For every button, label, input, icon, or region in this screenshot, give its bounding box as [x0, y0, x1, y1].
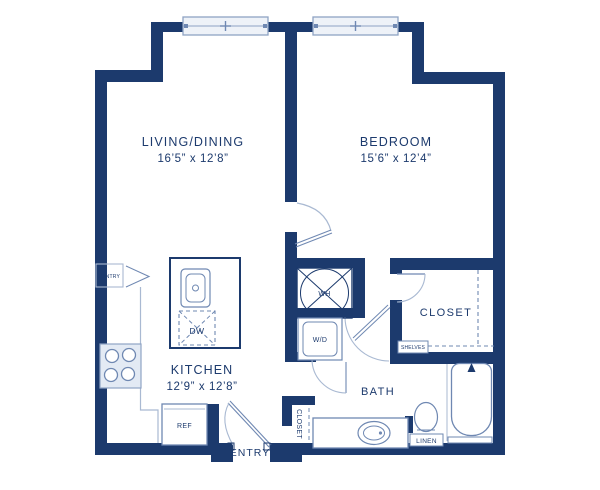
tub-ledge: [448, 437, 492, 443]
floor-plan-svg: LIVING/DINING 16’5” x 12’8” BEDROOM 15’6…: [0, 0, 600, 490]
toilet: [415, 403, 438, 432]
living-dining-label: LIVING/DINING: [142, 135, 245, 149]
bedroom-window: [313, 17, 398, 35]
bathtub: [447, 363, 492, 443]
burner: [123, 349, 136, 362]
kitchen-island: [170, 258, 240, 348]
water-heater-label: WH: [318, 291, 330, 298]
closet-door: [397, 274, 425, 302]
wall-closet-bottom: [390, 352, 505, 364]
burner: [122, 368, 135, 381]
wall-kitchen-entry-post: [207, 404, 219, 444]
entry-label: ENTRY: [230, 447, 270, 459]
burner: [105, 369, 118, 382]
pantry-door: [126, 266, 149, 287]
burner: [106, 350, 119, 363]
bedroom-double-door: [295, 203, 332, 247]
bath-door: [312, 359, 346, 393]
wall-utility-left: [285, 232, 297, 362]
washer-dryer-label: W/D: [313, 337, 328, 344]
dishwasher-label: DW: [190, 326, 205, 336]
bedroom-dimensions: 15’6” x 12’4”: [360, 153, 431, 165]
kitchen-label: KITCHEN: [171, 363, 234, 377]
counter-edge-lower: [141, 388, 159, 443]
kitchen-dimensions: 12’9” x 12’8”: [166, 381, 237, 393]
entry-door: [225, 401, 271, 450]
floor-plan: LIVING/DINING 16’5” x 12’8” BEDROOM 15’6…: [0, 0, 600, 490]
island-sink: [181, 269, 210, 307]
wall-closet-left-stub: [390, 258, 402, 274]
wall-top-left-step: [151, 22, 163, 82]
wall-left: [95, 70, 107, 455]
living-window: [183, 17, 268, 35]
entry-closet-label: CLOSET: [295, 409, 302, 439]
bedroom-label: BEDROOM: [360, 135, 432, 149]
closet-label: CLOSET: [420, 307, 472, 319]
vanity: [313, 418, 408, 448]
wall-living-bedroom: [285, 22, 297, 202]
wall-closet-top: [390, 258, 505, 270]
wall-top-right-step-horizontal: [412, 72, 495, 84]
linen-label: LINEN: [416, 438, 437, 445]
stove: [100, 344, 141, 388]
wall-entry-closet-left: [282, 396, 292, 426]
pantry-label: PANTRY: [99, 274, 120, 280]
bath-label: BATH: [361, 386, 395, 398]
living-dining-dimensions: 16’5” x 12’8”: [157, 153, 228, 165]
shelves-label: SHELVES: [401, 345, 426, 351]
bath-fixtures: [313, 363, 492, 448]
refrigerator-label: REF: [177, 423, 192, 430]
entry-door-jamb-right: [270, 443, 302, 462]
wall-top-segment-a: [163, 22, 185, 32]
